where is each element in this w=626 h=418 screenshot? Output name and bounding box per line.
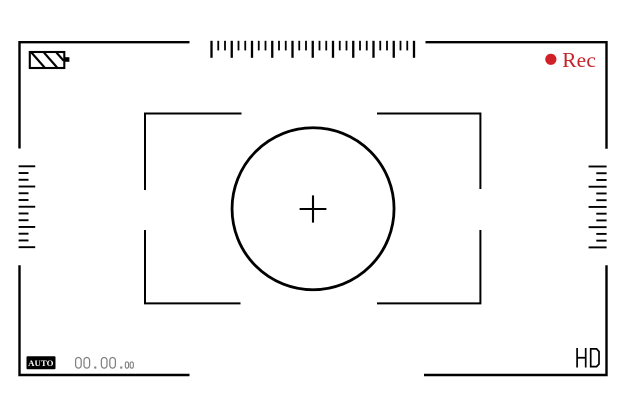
svg-text:AUTO: AUTO <box>28 358 53 368</box>
svg-text:Rec: Rec <box>562 48 596 72</box>
